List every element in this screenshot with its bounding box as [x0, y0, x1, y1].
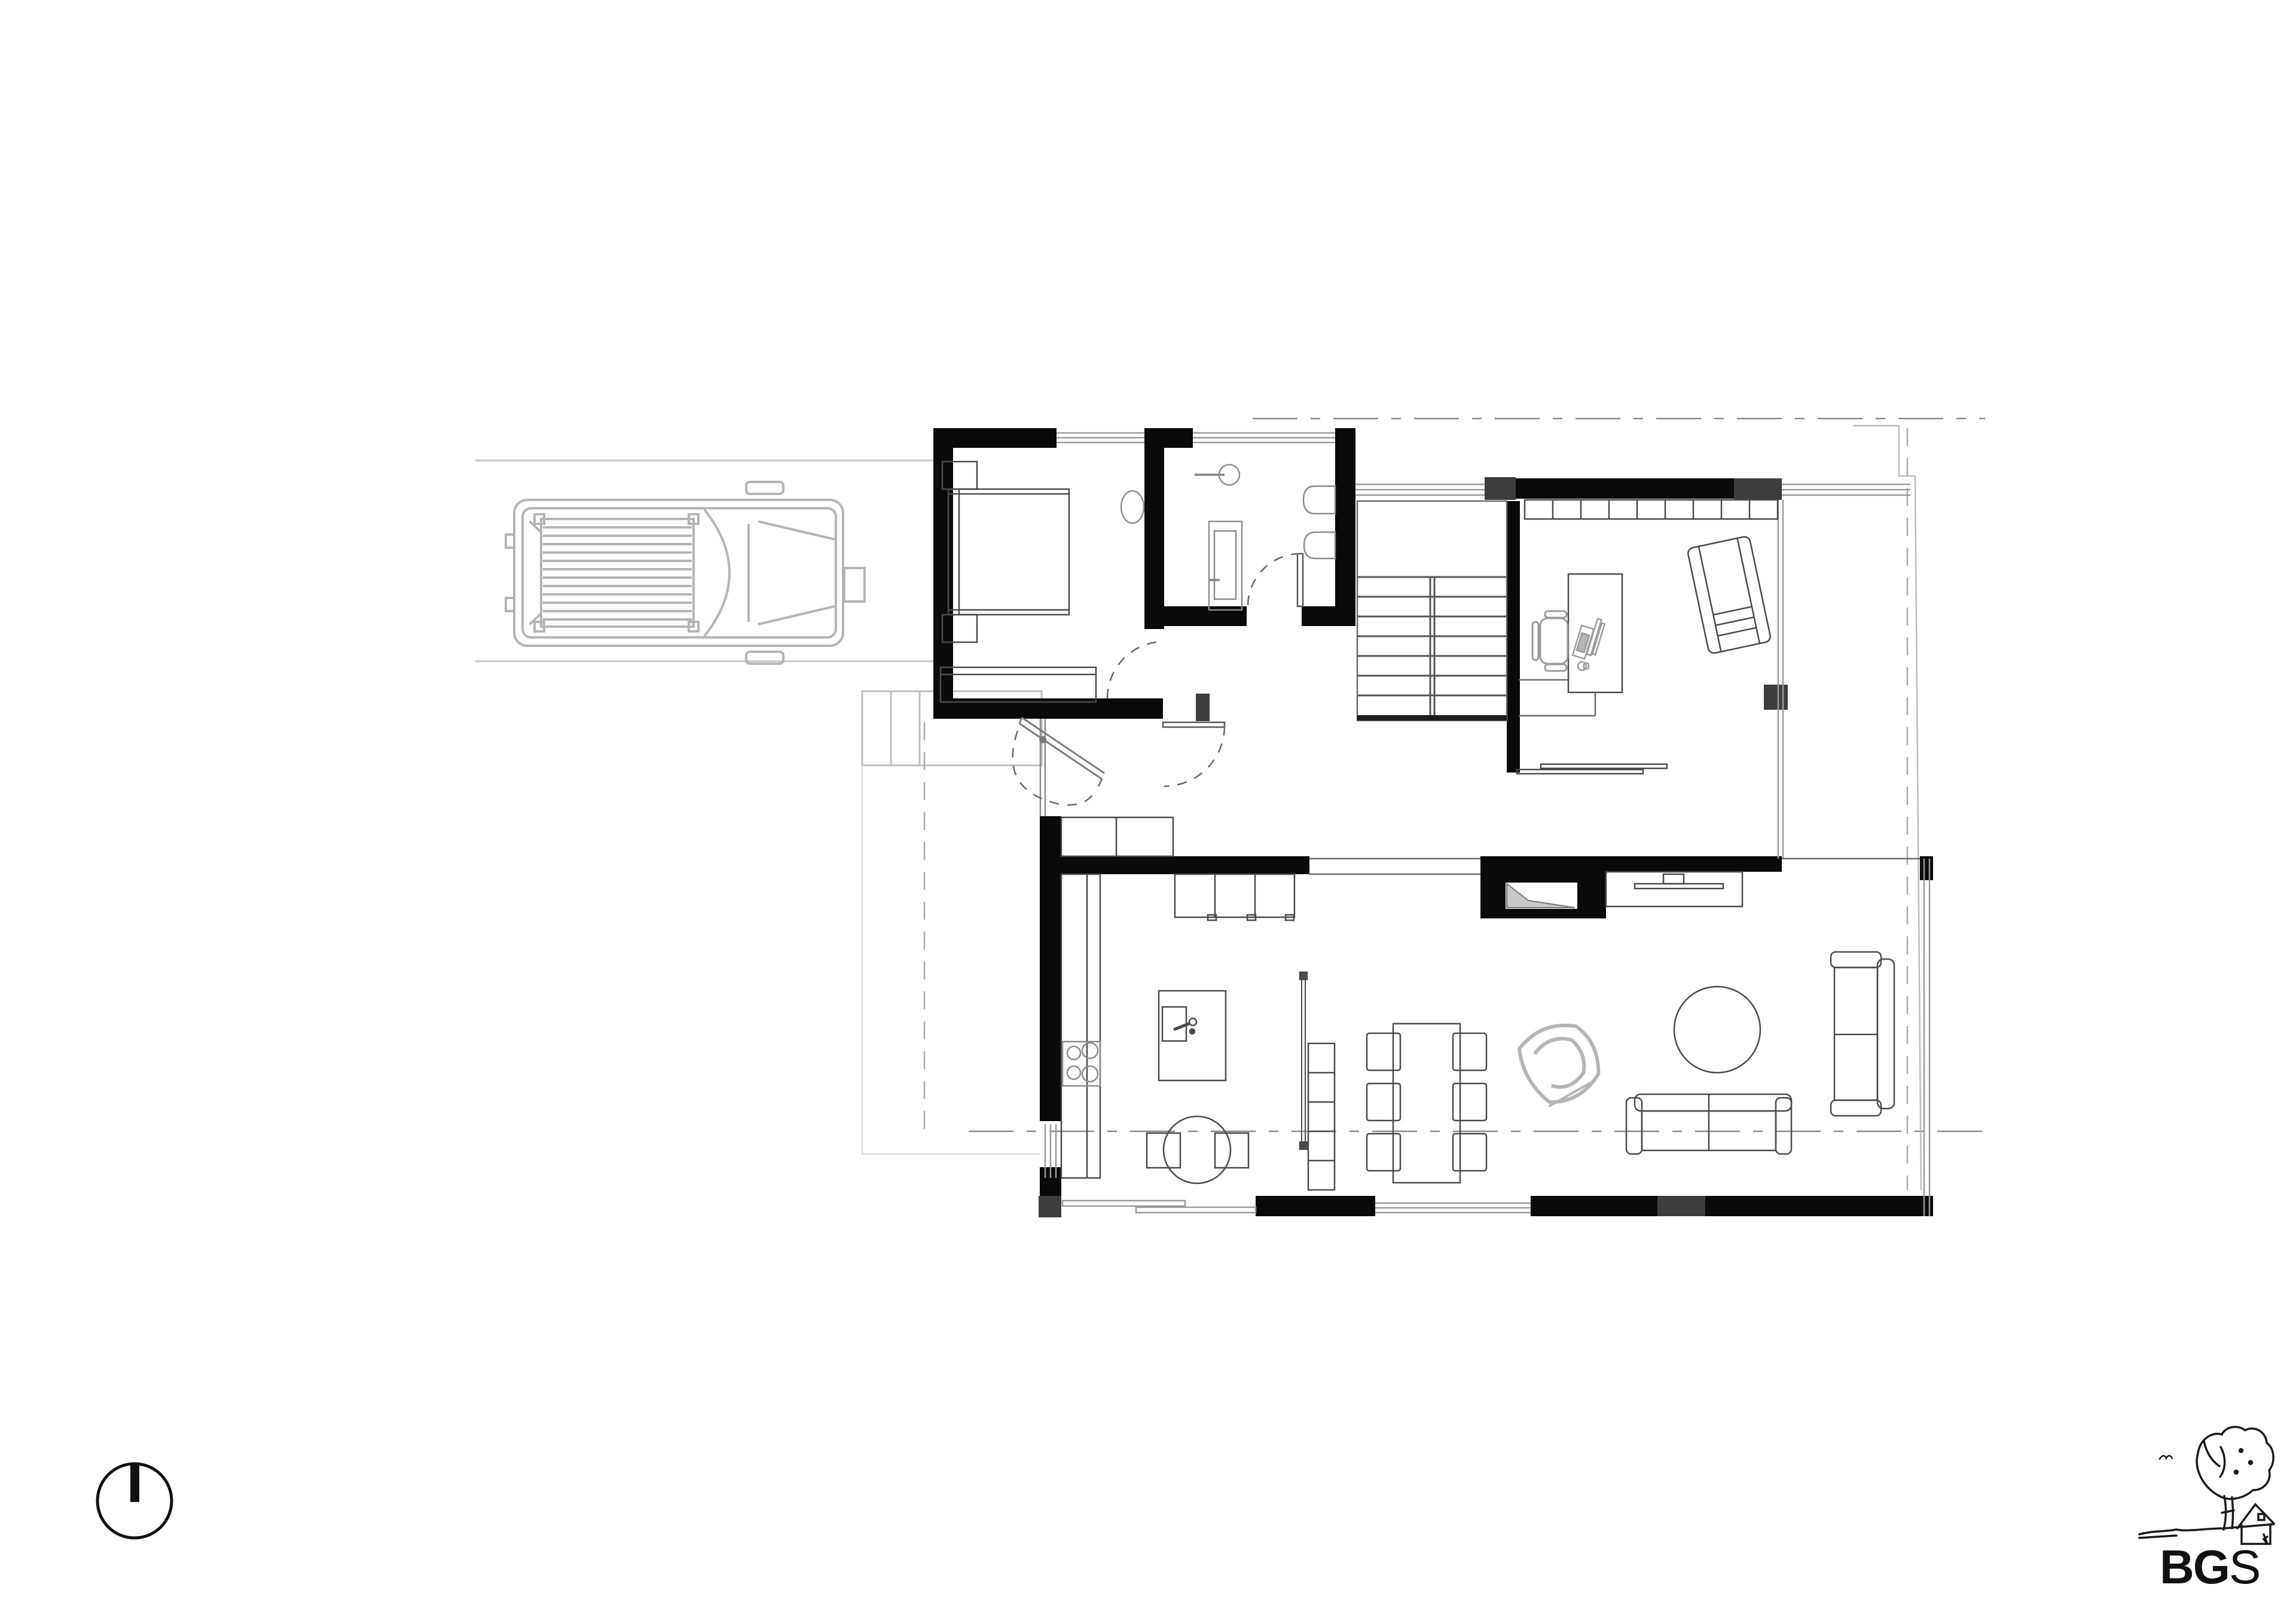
- north-arrow-icon: [97, 1463, 172, 1538]
- logo-text-bold: BG: [2160, 1540, 2229, 1594]
- chair-icon: [1215, 1133, 1248, 1168]
- cooktop-icon: [1062, 1042, 1100, 1086]
- bathtub-icon: [1209, 521, 1242, 610]
- bedroom-door-swing: [1107, 642, 1164, 698]
- bookshelf-icon: [1308, 1043, 1335, 1190]
- desk-items: [1573, 619, 1605, 670]
- kitchen-cabinets-icon: [1175, 874, 1294, 920]
- lounge-chair-icon: [1513, 1014, 1609, 1111]
- floor-plan-drawing: BGS: [0, 0, 2296, 1624]
- breakfast-table-icon: [1147, 1116, 1248, 1183]
- armchair-icon: [1687, 536, 1771, 654]
- dining: [1300, 972, 1609, 1190]
- bed-icon: [948, 489, 1069, 615]
- kitchen-counter-icon: [1061, 874, 1100, 1178]
- patio-outline: [862, 765, 1040, 1154]
- floor-plan-sheet: BGS: [0, 0, 2296, 1624]
- kitchen-island-icon: [1159, 991, 1226, 1080]
- bedroom-furniture: [941, 462, 1144, 702]
- desk-icon: [1568, 574, 1622, 692]
- wardrobe-icon: [1525, 500, 1778, 519]
- office: [1517, 500, 1778, 774]
- chair-icon: [1367, 1033, 1400, 1070]
- fireplace-icon: [1504, 881, 1578, 910]
- site-lines: [924, 419, 1985, 1190]
- chair-icon: [1453, 1083, 1486, 1121]
- sofa-icon: [1831, 952, 1894, 1116]
- bathroom-door: [1248, 554, 1303, 606]
- coffee-table-icon: [1674, 987, 1760, 1073]
- dining-table-icon: [1393, 1024, 1460, 1183]
- entry-door: [1013, 718, 1104, 816]
- sofa-icon: [1626, 1094, 1791, 1154]
- bathroom-fixtures: [1195, 465, 1335, 610]
- chair-icon: [1453, 1033, 1486, 1070]
- dining-chairs: [1367, 1033, 1486, 1171]
- sink-icon: [1195, 465, 1239, 485]
- svg-text:BGS: BGS: [2160, 1540, 2260, 1594]
- tree-house-sketch-icon: [2139, 1427, 2274, 1544]
- tv-icon: [1663, 874, 1684, 884]
- stairs-icon: [1357, 577, 1507, 721]
- chair-icon: [1453, 1134, 1486, 1171]
- toilet-icon: [1303, 486, 1335, 558]
- hall-door: [1163, 722, 1225, 786]
- dresser-icon: [941, 667, 1096, 702]
- room-divider-icon: [1300, 972, 1307, 1149]
- floor-edges: [1309, 501, 1920, 874]
- car-icon: [506, 482, 865, 664]
- logo-text-light: S: [2229, 1540, 2260, 1594]
- tv-sideboard-icon: [1606, 872, 1742, 906]
- bedroom-lamp-icon: [1121, 491, 1144, 523]
- office-shelf-icon: [1517, 764, 1667, 774]
- logo: BGS: [2139, 1427, 2274, 1594]
- office-chair-icon: [1532, 611, 1568, 671]
- chair-icon: [1367, 1083, 1400, 1121]
- chair-icon: [1367, 1134, 1400, 1171]
- hall-closet-icon: [1061, 817, 1173, 856]
- windows: [1045, 433, 1929, 1216]
